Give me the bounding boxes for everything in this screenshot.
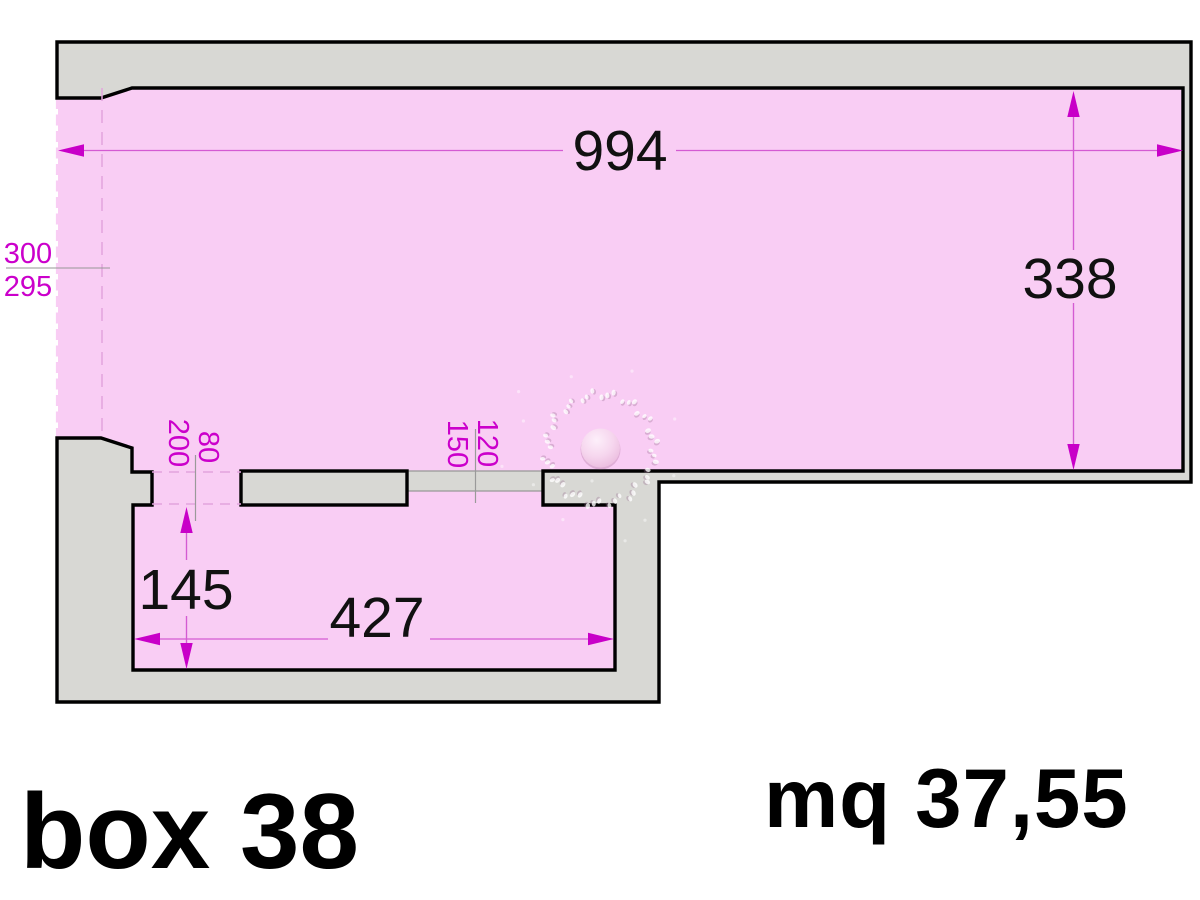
- svg-text:80: 80: [192, 431, 224, 463]
- svg-text:200: 200: [162, 419, 194, 467]
- svg-text:box 38: box 38: [20, 771, 359, 891]
- svg-text:994: 994: [572, 119, 667, 183]
- svg-text:338: 338: [1022, 247, 1117, 311]
- svg-text:145: 145: [138, 558, 233, 622]
- svg-text:295: 295: [4, 271, 52, 303]
- svg-text:427: 427: [329, 586, 424, 650]
- svg-text:150: 150: [441, 420, 473, 468]
- svg-text:300: 300: [4, 238, 52, 270]
- svg-text:mq 37,55: mq 37,55: [764, 751, 1129, 845]
- svg-text:120: 120: [471, 419, 503, 467]
